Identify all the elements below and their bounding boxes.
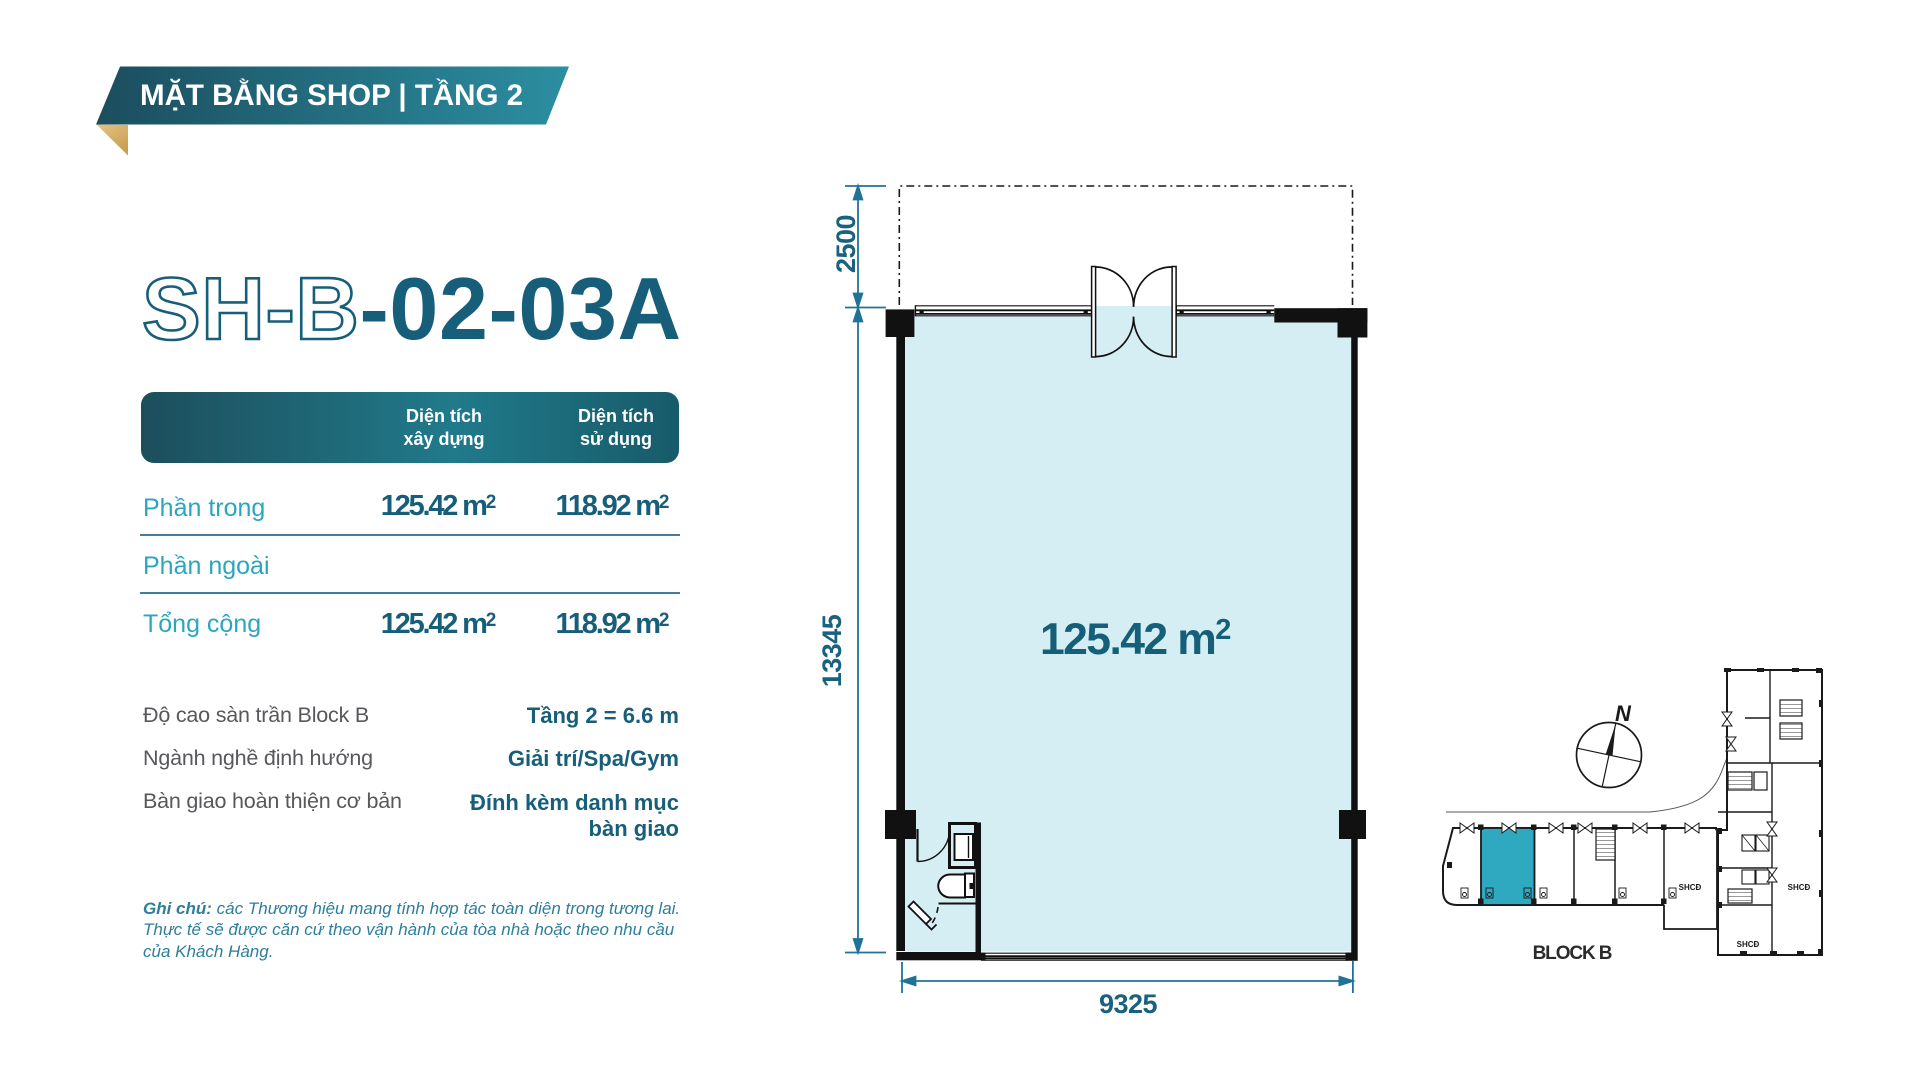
svg-text:13345: 13345	[817, 614, 847, 687]
svg-text:SHCĐ: SHCĐ	[1788, 883, 1811, 892]
svg-text:SHCĐ: SHCĐ	[1679, 883, 1702, 892]
svg-text:SHCĐ: SHCĐ	[1737, 940, 1760, 949]
svg-text:N: N	[1615, 701, 1632, 726]
svg-text:9325: 9325	[1099, 989, 1158, 1019]
svg-text:BLOCK B: BLOCK B	[1533, 943, 1612, 964]
svg-text:125.42 m2: 125.42 m2	[1040, 614, 1230, 664]
svg-text:2500: 2500	[831, 215, 861, 273]
